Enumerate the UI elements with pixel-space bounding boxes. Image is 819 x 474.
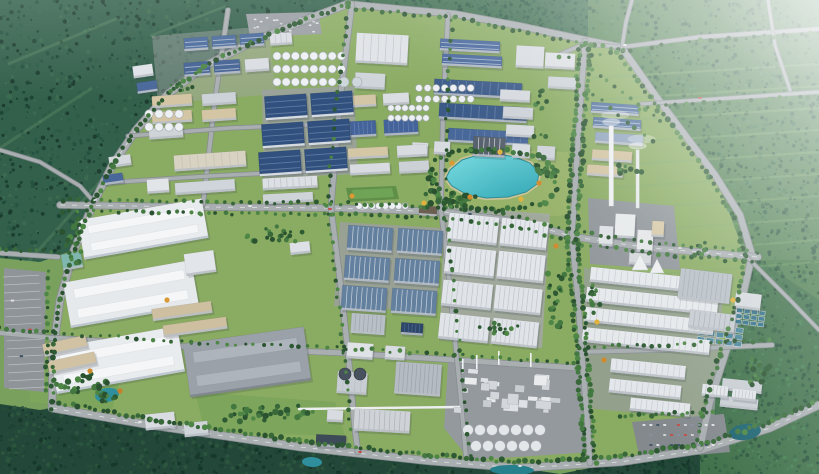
- scene-svg: [0, 0, 819, 474]
- industrial-park-aerial-image: [0, 0, 819, 474]
- haze-layer: [0, 0, 819, 474]
